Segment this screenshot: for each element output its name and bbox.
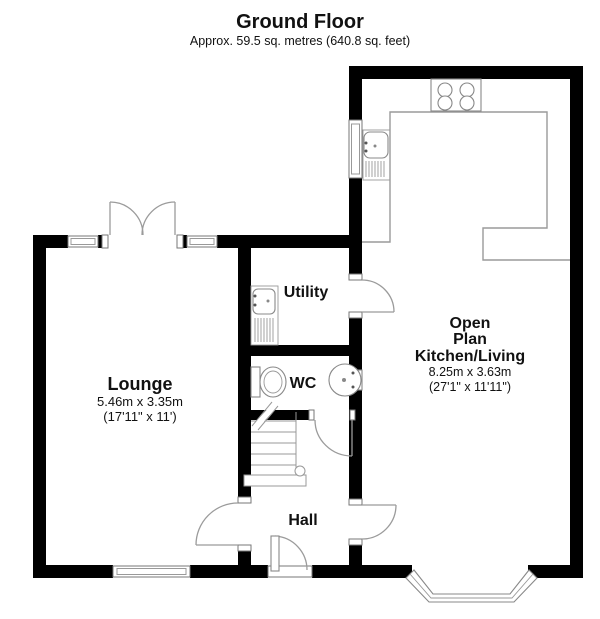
lounge-door <box>196 497 251 551</box>
wc-door <box>309 410 355 456</box>
toilet-icon <box>251 367 286 397</box>
kitchen-living-line2: Plan <box>453 331 487 348</box>
page-title: Ground Floor <box>236 11 364 33</box>
floorplan-page: Ground Floor Approx. 59.5 sq. metres (64… <box>0 0 600 619</box>
hall-label: Hall <box>288 512 317 529</box>
lounge-label: Lounge 5.46m x 3.35m (17'11" x 11') <box>97 374 183 424</box>
lounge-dims-metric: 5.46m x 3.35m <box>97 394 183 409</box>
utility-sink-icon <box>251 286 278 345</box>
kitchen-counter <box>362 112 570 260</box>
kitchen-living-dims-metric: 8.25m x 3.63m <box>429 365 512 379</box>
hob-icon <box>431 79 481 111</box>
page-subtitle: Approx. 59.5 sq. metres (640.8 sq. feet) <box>190 34 410 48</box>
kitchen-side-window <box>349 120 362 178</box>
kitchen-living-line3: Kitchen/Living <box>415 348 525 365</box>
walls <box>33 66 583 578</box>
lounge-top-window-left <box>68 236 98 247</box>
floorplan-canvas: Ground Floor Approx. 59.5 sq. metres (64… <box>0 0 600 619</box>
wc-label: WC <box>290 375 317 392</box>
kitchen-living-label: Open Plan Kitchen/Living 8.25m x 3.63m (… <box>415 315 525 394</box>
lounge-dims-imperial: (17'11" x 11') <box>103 409 176 424</box>
lounge-top-window-right <box>187 236 217 247</box>
utility-label: Utility <box>284 284 329 301</box>
kitchen-sink-icon <box>363 130 390 180</box>
lounge-bottom-window <box>113 566 190 577</box>
kitchen-living-dims-imperial: (27'1" x 11'11") <box>429 380 511 394</box>
kitchen-living-line1: Open <box>450 315 491 332</box>
bay-window <box>406 570 537 602</box>
hall-kitchen-door <box>349 499 396 545</box>
wash-basin-icon <box>329 364 362 396</box>
lounge-name: Lounge <box>108 374 173 394</box>
front-door <box>268 536 312 577</box>
utility-kitchen-door <box>349 274 394 318</box>
french-doors <box>102 202 183 248</box>
